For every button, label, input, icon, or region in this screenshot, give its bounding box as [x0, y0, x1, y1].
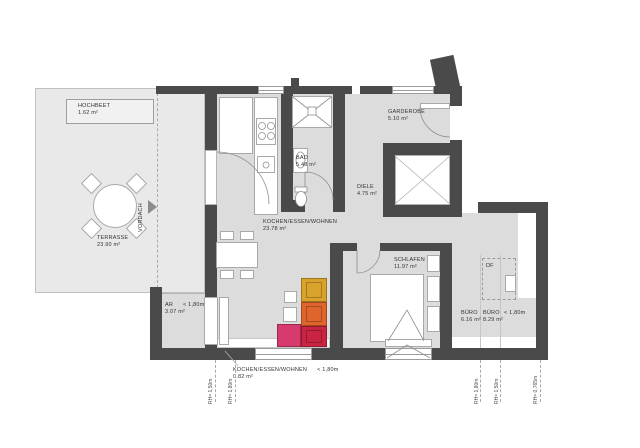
- room-area: 23.78 m²: [263, 226, 337, 233]
- sofa-section-pink: [277, 324, 301, 347]
- wall: [150, 348, 548, 360]
- bed: [370, 274, 424, 342]
- room-area: 0.82 m²: [233, 374, 339, 381]
- wall: [156, 86, 352, 94]
- room-name: GARDEROBE: [388, 109, 425, 116]
- room-name: TERRASSE: [97, 235, 128, 242]
- window: [255, 348, 312, 360]
- wall: [450, 86, 462, 106]
- sink: [257, 156, 275, 173]
- room-area: 5.10 m²: [388, 116, 425, 123]
- room-name: AR: [165, 302, 173, 308]
- vordach-label: VORDACH: [138, 203, 145, 232]
- room-name: HOCHBEET: [78, 103, 110, 110]
- room-label-garderobe: GARDEROBE 5.10 m²: [388, 109, 425, 124]
- room-label-hochbeet: HOCHBEET 1.62 m²: [78, 103, 110, 118]
- terrace-door-opening: [205, 150, 217, 205]
- height-mark-line: [235, 360, 236, 402]
- window: [385, 348, 432, 360]
- shower: [292, 96, 332, 128]
- df-window: [505, 275, 516, 292]
- room-name: BÜRO: [483, 310, 503, 317]
- vordach-text: VORDACH: [138, 203, 144, 232]
- vent: [291, 78, 299, 86]
- height-mark-label: RH= 1,80m: [474, 379, 480, 404]
- chair: [220, 231, 234, 240]
- ar-sliding-door: [204, 297, 218, 345]
- stove: [256, 118, 276, 145]
- height-mark-label: RH= 1,50m: [494, 379, 500, 404]
- height-note-text: < 1,80m: [504, 310, 525, 316]
- room-area: 23.90 m²: [97, 242, 128, 249]
- wall: [205, 86, 217, 150]
- room-label-buero-2: BÜRO 8.29 m²: [483, 310, 503, 325]
- room-name: KOCHEN/ESSEN/WOHNEN: [263, 219, 337, 226]
- entrance-door-opening: [450, 106, 462, 140]
- room-area: 8.29 m²: [483, 317, 503, 324]
- height-boundary-line: [480, 255, 481, 348]
- room-label-buero-1: BÜRO 6.16 m²: [461, 310, 481, 325]
- room-label-wohnen: KOCHEN/ESSEN/WOHNEN 23.78 m²: [263, 219, 337, 234]
- sofa-section-yellow: [301, 278, 327, 302]
- low-height-strip-buero-right: [518, 213, 536, 298]
- room-name: DIELE: [357, 184, 377, 191]
- chimney: [430, 55, 460, 91]
- wall: [343, 243, 357, 251]
- room-name: SCHLAFEN: [394, 257, 425, 264]
- window: [392, 86, 434, 94]
- height-note-text: < 1,80m: [317, 367, 338, 373]
- vordach-line: [157, 88, 158, 293]
- df-label: DF: [486, 263, 494, 270]
- height-mark-line: [480, 360, 481, 402]
- room-label-diele: DIELE 4.75 m²: [357, 184, 377, 199]
- room-area: 11.97 m²: [394, 264, 425, 271]
- floor-plan: HOCHBEET 1.62 m² TERRASSE 23.90 m² VORDA…: [0, 0, 640, 448]
- room-area: 6.16 m²: [461, 317, 481, 324]
- wall: [440, 243, 452, 348]
- room-area: 3.07 m²: [165, 309, 204, 316]
- room-label-ar: AR< 1,80m 3.07 m²: [165, 302, 204, 317]
- wall: [383, 205, 462, 217]
- room-name: BAD: [296, 155, 316, 162]
- room-label-terrasse: TERRASSE 23.90 m²: [97, 235, 128, 250]
- height-mark-line: [215, 360, 216, 402]
- height-mark-line: [540, 360, 541, 402]
- wall: [333, 94, 345, 212]
- height-mark-label: RH= 0,765m: [533, 376, 539, 404]
- height-mark-label: RH= 1,80m: [228, 379, 234, 404]
- wall: [383, 143, 462, 155]
- df-text: DF: [486, 263, 494, 269]
- side-table: [283, 307, 297, 322]
- chair: [240, 231, 254, 240]
- height-note-text: < 1,80m: [183, 302, 204, 308]
- room-label-schlafen: SCHLAFEN 11.97 m²: [394, 257, 425, 272]
- room-area: 1.62 m²: [78, 110, 110, 117]
- tall-cabinet: [219, 97, 253, 154]
- room-label-bad: BAD 5.48 m²: [296, 155, 316, 170]
- chair: [220, 270, 234, 279]
- window-sill: [385, 339, 432, 347]
- nightstand: [427, 306, 440, 332]
- sofa-section-red: [301, 326, 327, 347]
- window: [258, 86, 284, 94]
- tv-board: [219, 297, 229, 345]
- elevator-shaft: [395, 155, 450, 205]
- chair: [240, 270, 254, 279]
- dining-table-round: [93, 184, 137, 228]
- wall: [330, 243, 343, 348]
- wall: [281, 200, 305, 212]
- room-label-wohnen-low: KOCHEN/ESSEN/WOHNEN< 1,80m 0.82 m²: [233, 367, 339, 382]
- nightstand: [427, 276, 440, 302]
- side-table: [284, 291, 297, 303]
- wardrobe: [427, 255, 440, 272]
- room-area: 5.48 m²: [296, 162, 316, 169]
- buero-height-note: < 1,80m: [504, 310, 525, 317]
- low-height-strip-buero-bottom: [450, 337, 536, 348]
- sofa-section-orange: [301, 302, 327, 326]
- room-area: 4.75 m²: [357, 191, 377, 198]
- room-name: BÜRO: [461, 310, 481, 317]
- height-mark-label: RH= 1,50m: [208, 379, 214, 404]
- wall: [478, 202, 548, 213]
- dining-table: [216, 242, 258, 268]
- room-name: KOCHEN/ESSEN/WOHNEN: [233, 367, 307, 373]
- wall: [536, 202, 548, 360]
- height-mark-line: [500, 360, 501, 402]
